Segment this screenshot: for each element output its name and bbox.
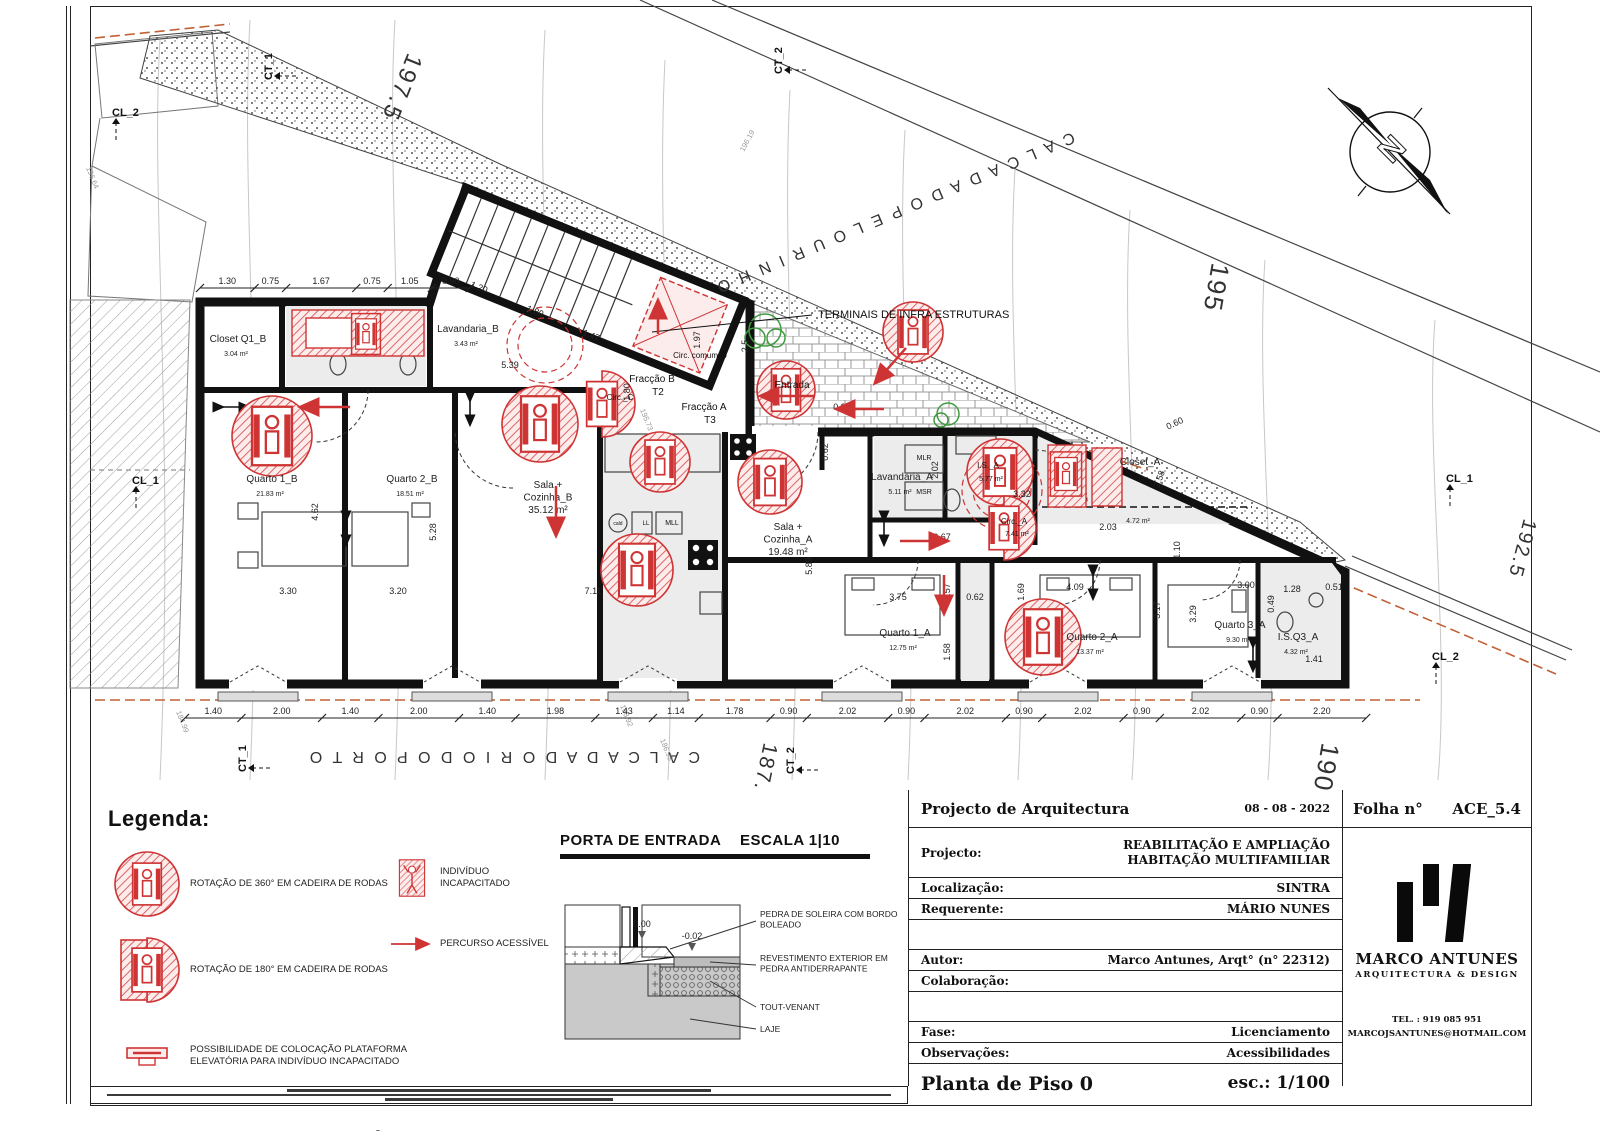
field-value: MÁRIO NUNES [1227,902,1330,917]
field-projecto: Projecto: REABILITAÇÃO E AMPLIAÇÃO HABIT… [909,828,1342,878]
field-value: Marco Antunes, Arqt° (n° 22312) [1108,953,1330,968]
section-marker: CL_2 [112,107,139,142]
field-label: Observações: [921,1046,1009,1060]
svg-text:CT_1: CT_1 [263,53,275,80]
dimension-value: 0.49 [1266,595,1276,613]
field-value: SINTRA [1277,881,1330,896]
dimension-value: 2.20 [1313,706,1331,716]
field-empty [909,920,1342,950]
dimension-value: 1.40 [204,706,222,716]
architectural-sheet: N C A L C A D A D O P E L O U R I N H OC… [0,0,1600,1131]
dimension-value: 3.17 [1152,601,1162,619]
fine-print-line [385,1098,613,1101]
circle360-icon [107,846,187,922]
dimension-value: 2.02 [1074,706,1092,716]
dimension-value: 3.75 [889,592,907,602]
contour-elevation: 184.99 [174,709,191,734]
title-block-right: Folha n° ACE_5.4 MARCO ANTUNES ARQUITECT… [1343,790,1531,1086]
section-marker: CL_1 [1446,473,1473,508]
legend-icon-cell [104,1104,190,1131]
person-icon [384,840,440,916]
field-label: Colaboração: [921,974,1009,988]
elevation-label: 192.5 [1504,517,1541,581]
svg-text:CL_2: CL_2 [1432,651,1459,663]
street-name: C A L C A D A D O P E L O U R I N H O [712,128,1077,296]
firm-contact: TEL. : 919 085 951 MARCOJSANTUNES@HOTMAI… [1343,1014,1531,1041]
detail-title-text: PORTA DE ENTRADA [560,832,721,849]
dimension-value: 0.75 [363,276,381,286]
dimension-value: 0.62 [966,592,984,602]
dimension-value: 2.02 [930,461,940,479]
drawing-name-row: Planta de Piso 0 esc.: 1/100 [909,1064,1342,1104]
room-area: 21.83 m² [256,491,284,498]
dimension-value: 3.20 [389,586,407,596]
section-marker: CT_2 [785,747,820,774]
room-area: 3.43 m² [454,341,478,348]
sheet-number-row: Folha n° ACE_5.4 [1343,790,1531,828]
dimension-value: 1.41 [1305,654,1323,664]
dimension-value: 1.10 [1172,541,1182,559]
annotation: Fracção A [681,402,726,413]
dashes-icon [107,1104,187,1131]
field-observacoes: Observações: Acessibilidades [909,1043,1342,1064]
rotation-360-icon [601,534,673,606]
field-value: REABILITAÇÃO E AMPLIAÇÃO HABITAÇÃO MULTI… [1123,838,1330,868]
legend-item: POSSIBILIDADE DE COLOCAÇÃO PLATAFORMA EL… [104,1018,558,1094]
detail-drawing: 0.00-0.02PEDRA DE SOLEIRA COM BORDOBOLEA… [560,869,910,1069]
legend-title: Legenda: [108,806,558,832]
section-marker: CT_2 [773,47,808,74]
entrance-door-detail: PORTA DE ENTRADA ESCALA 1|10 0.00-0.02PE… [560,832,920,1074]
dimension-value: 0.62 [820,443,830,461]
firm-name: MARCO ANTUNES [1343,950,1531,968]
rotation-360-icon [738,450,802,514]
legend-icon-cell [104,932,190,1008]
legend-right-column: INDIVÍDUO INCAPACITADOPERCURSO ACESSÍVEL [378,850,558,982]
elevation-label: 187.5 [746,741,782,790]
legend-item-label: ROTAÇÃO DE 360° EM CADEIRA DE RODAS [190,878,388,890]
room-name: Quarto 2_A [1066,632,1117,643]
firm-name-block: MARCO ANTUNES ARQUITECTURA & DESIGN [1343,950,1531,980]
annotation: Circ._A [1001,517,1028,526]
annotation: Fracção B [629,374,675,385]
legend-item: PERCURSO ACESSÍVEL [384,916,558,972]
dimension-value: 0.90 [898,706,916,716]
room-name: Quarto 1_B [246,474,297,485]
room-name: Quarto 1_A [879,628,930,639]
field-label: Fase: [921,1025,955,1039]
field-fase: Fase: Licenciamento [909,1022,1342,1043]
room-area: 13.37 m² [1076,649,1104,656]
dimension-value: 0.90 [1015,706,1033,716]
fine-print-line [287,1089,711,1092]
title-block-left: Projecto de Arquitectura 08 - 08 - 2022 … [909,790,1343,1086]
dimension-value: 0.90 [1133,706,1151,716]
dimension-value: 2.00 [273,706,291,716]
street-name: C A L C A D A D O R I O D O P O R T O [307,748,700,765]
dimension-value: 0.90 [1251,706,1269,716]
dimension-value: 5.39 [501,360,519,370]
annotation: 7.41 m² [1005,531,1029,538]
dimension-value: 3.32 [1013,489,1031,499]
room-name: Lavandaria_A [871,472,933,483]
annotation: TERMINAIS DE INFRA ESTRUTURAS [818,309,1009,321]
legend-item-label: INDIVÍDUO INCAPACITADO [440,866,558,890]
dimension-value: 4.62 [310,503,320,521]
room-name: I.S.Q3_A [1278,632,1319,643]
room-area: 5.11 m² [888,489,912,496]
site-hatch-left [70,300,190,688]
legend-icon-cell [104,846,190,922]
annotation: I.S._A [977,461,999,470]
dimension-value: 5.28 [428,523,438,541]
firm-phone: TEL. : 919 085 951 [1343,1014,1531,1028]
detail-label: LAJE [760,1024,781,1034]
elevation-label: 197.5 [376,50,427,125]
dimension-value: 1.78 [726,706,744,716]
legend-item: PAREDE COM CAPACIDADE PARA FIXAÇÃO DE BA… [104,1104,558,1131]
folha-label: Folha n° [1353,800,1423,818]
annotation: MSR [916,489,932,496]
dimension-value: 0.51 [1325,582,1343,592]
disabled-person-icon [1050,452,1081,496]
room-area: 4.72 m² [1126,518,1150,525]
elevation-label: 195 [1198,261,1236,315]
detail-title-underline [560,854,870,859]
dimension-value: 1.05 [401,276,419,286]
dimension-value: 2.02 [839,706,857,716]
title-block: Projecto de Arquitectura 08 - 08 - 2022 … [908,790,1531,1086]
elevation-label: 190 [1308,741,1346,790]
field-label: Autor: [921,953,963,967]
dimension-value: 2.00 [410,706,428,716]
svg-text:CL_1: CL_1 [132,475,159,487]
field-label: Projecto: [921,846,982,860]
detail-label: PEDRA DE SOLEIRA COM BORDOBOLEADO [760,909,898,930]
room-name: Quarto 3_A [1214,620,1265,631]
disabled-person-icon [352,314,381,355]
dimension-value: 1.30 [219,276,237,286]
svg-text:CT_2: CT_2 [785,747,797,774]
dimension-value: 1.67 [312,276,330,286]
dimension-value: 1.28 [1283,584,1301,594]
legend-icon-cell [384,916,440,972]
dimension-value: 1.98 [547,706,565,716]
dimension-value: 1.80 [622,383,632,401]
dimension-value: 2.03 [1099,522,1117,532]
legend-item-label: ROTAÇÃO DE 180° EM CADEIRA DE RODAS [190,964,388,976]
dimension-chain-bottom: 1.402.001.402.001.401.981.431.141.780.90… [181,706,1370,722]
room-area: 12.75 m² [889,645,917,652]
annotation: Circ. comum_0 [673,351,727,360]
detail-title: PORTA DE ENTRADA ESCALA 1|10 [560,832,920,849]
dimension-value: 3.29 [1188,605,1198,623]
dimension-value: 0.90 [780,706,798,716]
svg-text:CT_1: CT_1 [237,745,249,772]
dimension-value: 0.90 [442,276,460,286]
annotation: MLR [917,455,932,462]
dimension-value: 3.30 [279,586,297,596]
firm-tagline: ARQUITECTURA & DESIGN [1343,970,1531,980]
fine-print-line [107,1094,890,1097]
legend-item: INDIVÍDUO INCAPACITADO [384,850,558,906]
rotation-360-icon [630,432,690,492]
arrow-icon [384,906,440,982]
field-label: Localização: [921,881,1004,895]
fine-print [90,1086,908,1104]
field-value: Acessibilidades [1227,1046,1330,1061]
dimension-value: 1.14 [667,706,685,716]
field-label: Requerente: [921,902,1004,916]
field-empty [909,992,1342,1022]
annotation: cald [613,521,622,527]
svg-text:CL_1: CL_1 [1446,473,1473,485]
contour-elevation: 196.19 [738,128,757,152]
field-localizacao: Localização: SINTRA [909,878,1342,899]
annotation: T2 [652,387,664,398]
dimension-value: 1.97 [692,331,702,349]
field-autor: Autor: Marco Antunes, Arqt° (n° 22312) [909,950,1342,971]
folha-value: ACE_5.4 [1452,800,1521,818]
section-marker: CT_1 [237,745,272,772]
legend-icon-cell [384,850,440,906]
detail-label: REVESTIMENTO EXTERIOR EMPEDRA ANTIDERRAP… [760,953,888,974]
annotation: MLL [665,520,679,527]
legend-icon-cell [104,1018,190,1094]
field-value: Licenciamento [1231,1025,1330,1040]
svg-text:CT_2: CT_2 [773,47,785,74]
floor-plan: N C A L C A D A D O P E L O U R I N H OC… [0,0,1600,790]
dimension-value: 0.60 [1165,415,1185,431]
dimension-value: 7.11 [585,586,602,596]
dimension-value: 1.40 [478,706,496,716]
rotation-360-icon [502,386,578,462]
field-requerente: Requerente: MÁRIO NUNES [909,899,1342,920]
drawing-type: Projecto de Arquitectura [921,800,1129,818]
room-name: Closet Q1_B [210,334,267,345]
dimension-value: 0.75 [262,276,280,286]
legend-item-label: PERCURSO ACESSÍVEL [440,938,549,950]
drawing-scale: esc.: 1/100 [1228,1073,1330,1094]
annotation: T3 [704,415,716,426]
detail-label: TOUT-VENANT [760,1002,820,1012]
annotation: LL [643,521,650,527]
room-name: Lavandaria_B [437,324,499,335]
circle180-icon [107,932,187,1008]
annotation: 5.77 m² [979,476,1003,483]
legend-item-label: POSSIBILIDADE DE COLOCAÇÃO PLATAFORMA EL… [190,1044,407,1068]
section-marker: CL_2 [1432,651,1459,686]
north-arrow-icon: N [1328,88,1450,214]
field-colaboracao: Colaboração: [909,971,1342,992]
firm-logo [1389,864,1485,942]
level-value: 0.00 [633,919,651,929]
dimension-value: 5.89 [804,557,814,575]
dimension-value: 0.90 [833,402,851,412]
title-block-header-row: Projecto de Arquitectura 08 - 08 - 2022 [909,790,1342,828]
legend: Legenda: ROTAÇÃO DE 360° EM CADEIRA DE R… [98,798,558,1086]
entrance-opening [752,426,818,438]
dimension-value: 2.02 [1192,706,1210,716]
room-name: Quarto 2_B [386,474,437,485]
firm-email: MARCOJSANTUNES@HOTMAIL.COM [1343,1028,1531,1042]
dimension-value: 1.69 [1016,583,1026,601]
room-name: Closet_A [1120,457,1161,468]
room-area: 18.51 m² [396,491,424,498]
dimension-value: 1.40 [341,706,359,716]
drawing-name: Planta de Piso 0 [921,1073,1093,1095]
room-area: 3.04 m² [224,351,248,358]
dimension-value: 2.5 [740,340,750,353]
svg-text:CL_2: CL_2 [112,107,139,119]
platform-icon [107,1018,187,1094]
dimension-value: 2.02 [956,706,974,716]
drawing-date: 08 - 08 - 2022 [1244,802,1330,816]
dimension-value: 3.00 [1237,580,1255,590]
dimension-value: 1.43 [615,706,633,716]
annotation: Entrada [774,380,809,391]
room-area: 9.30 m² [1226,637,1250,644]
dimension-value: 4.09 [1066,582,1084,592]
detail-scale-text: ESCALA 1|10 [740,832,840,849]
bottom-band: Legenda: ROTAÇÃO DE 360° EM CADEIRA DE R… [90,790,1530,1086]
dimension-value: 1.58 [942,643,952,661]
rotation-360-icon [232,396,312,476]
